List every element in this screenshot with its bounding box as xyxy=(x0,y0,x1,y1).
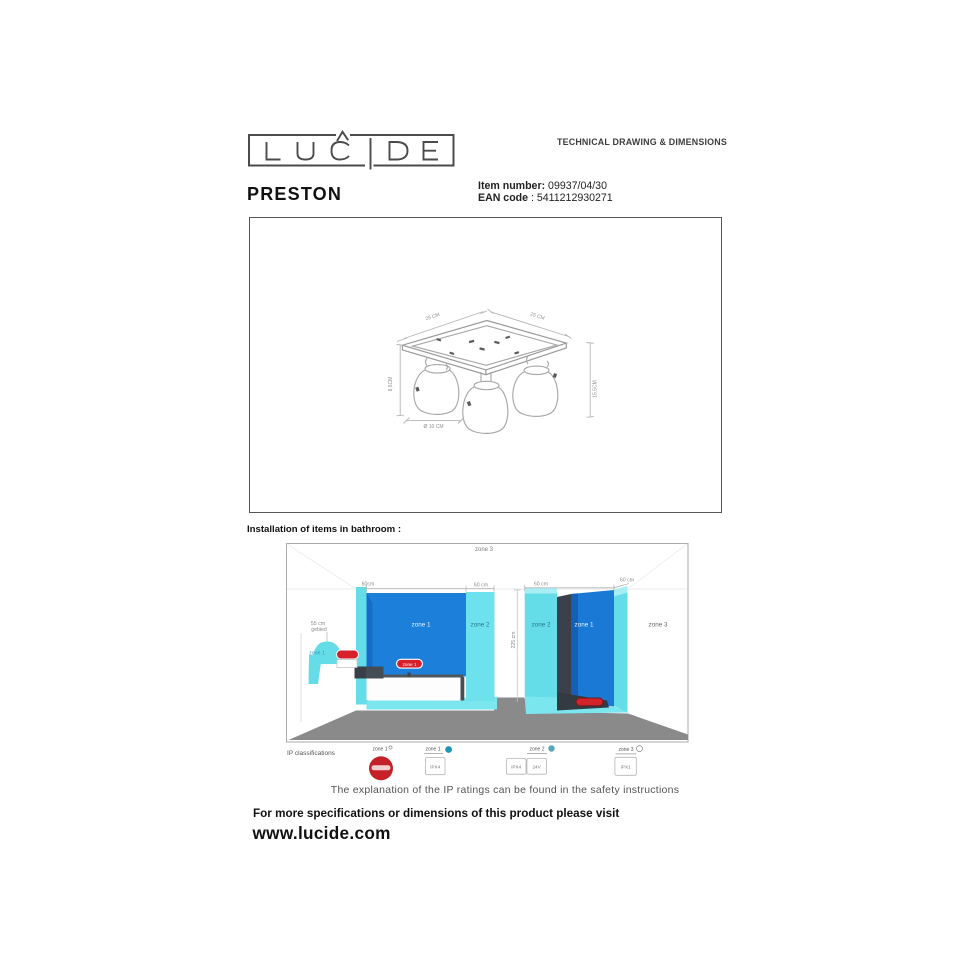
svg-text:zone 3: zone 3 xyxy=(649,622,668,629)
svg-text:IPX1: IPX1 xyxy=(621,764,631,769)
svg-text:zone 1: zone 1 xyxy=(425,747,440,753)
svg-text:8,5CM: 8,5CM xyxy=(388,377,394,392)
svg-text:zone 1: zone 1 xyxy=(372,747,387,753)
svg-text:zone 1: zone 1 xyxy=(309,651,325,657)
svg-text:zone 2: zone 2 xyxy=(471,622,490,629)
svg-text:gebied: gebied xyxy=(311,627,327,633)
svg-text:25 CM: 25 CM xyxy=(529,311,545,321)
svg-text:60 cm: 60 cm xyxy=(620,578,634,584)
svg-text:zone 3: zone 3 xyxy=(618,747,633,753)
svg-text:24V: 24V xyxy=(533,764,542,769)
svg-text:zone 3: zone 3 xyxy=(475,547,494,553)
svg-text:15,5CM: 15,5CM xyxy=(593,380,599,398)
svg-text:zone 2: zone 2 xyxy=(529,747,544,753)
svg-text:zone 2: zone 2 xyxy=(532,622,551,629)
svg-text:25 CM: 25 CM xyxy=(425,312,441,322)
svg-text:60cm: 60cm xyxy=(362,582,375,588)
svg-text:zone 1: zone 1 xyxy=(403,662,417,667)
svg-text:zone 1: zone 1 xyxy=(575,622,594,629)
svg-text:225 cm: 225 cm xyxy=(511,631,517,648)
svg-text:Ø 10 CM: Ø 10 CM xyxy=(423,424,443,430)
svg-text:60 cm: 60 cm xyxy=(474,583,488,589)
svg-text:IPX4: IPX4 xyxy=(511,764,521,769)
svg-text:zone 1: zone 1 xyxy=(412,622,431,629)
svg-text:60 cm: 60 cm xyxy=(534,582,548,588)
svg-text:IPX4: IPX4 xyxy=(430,765,440,770)
